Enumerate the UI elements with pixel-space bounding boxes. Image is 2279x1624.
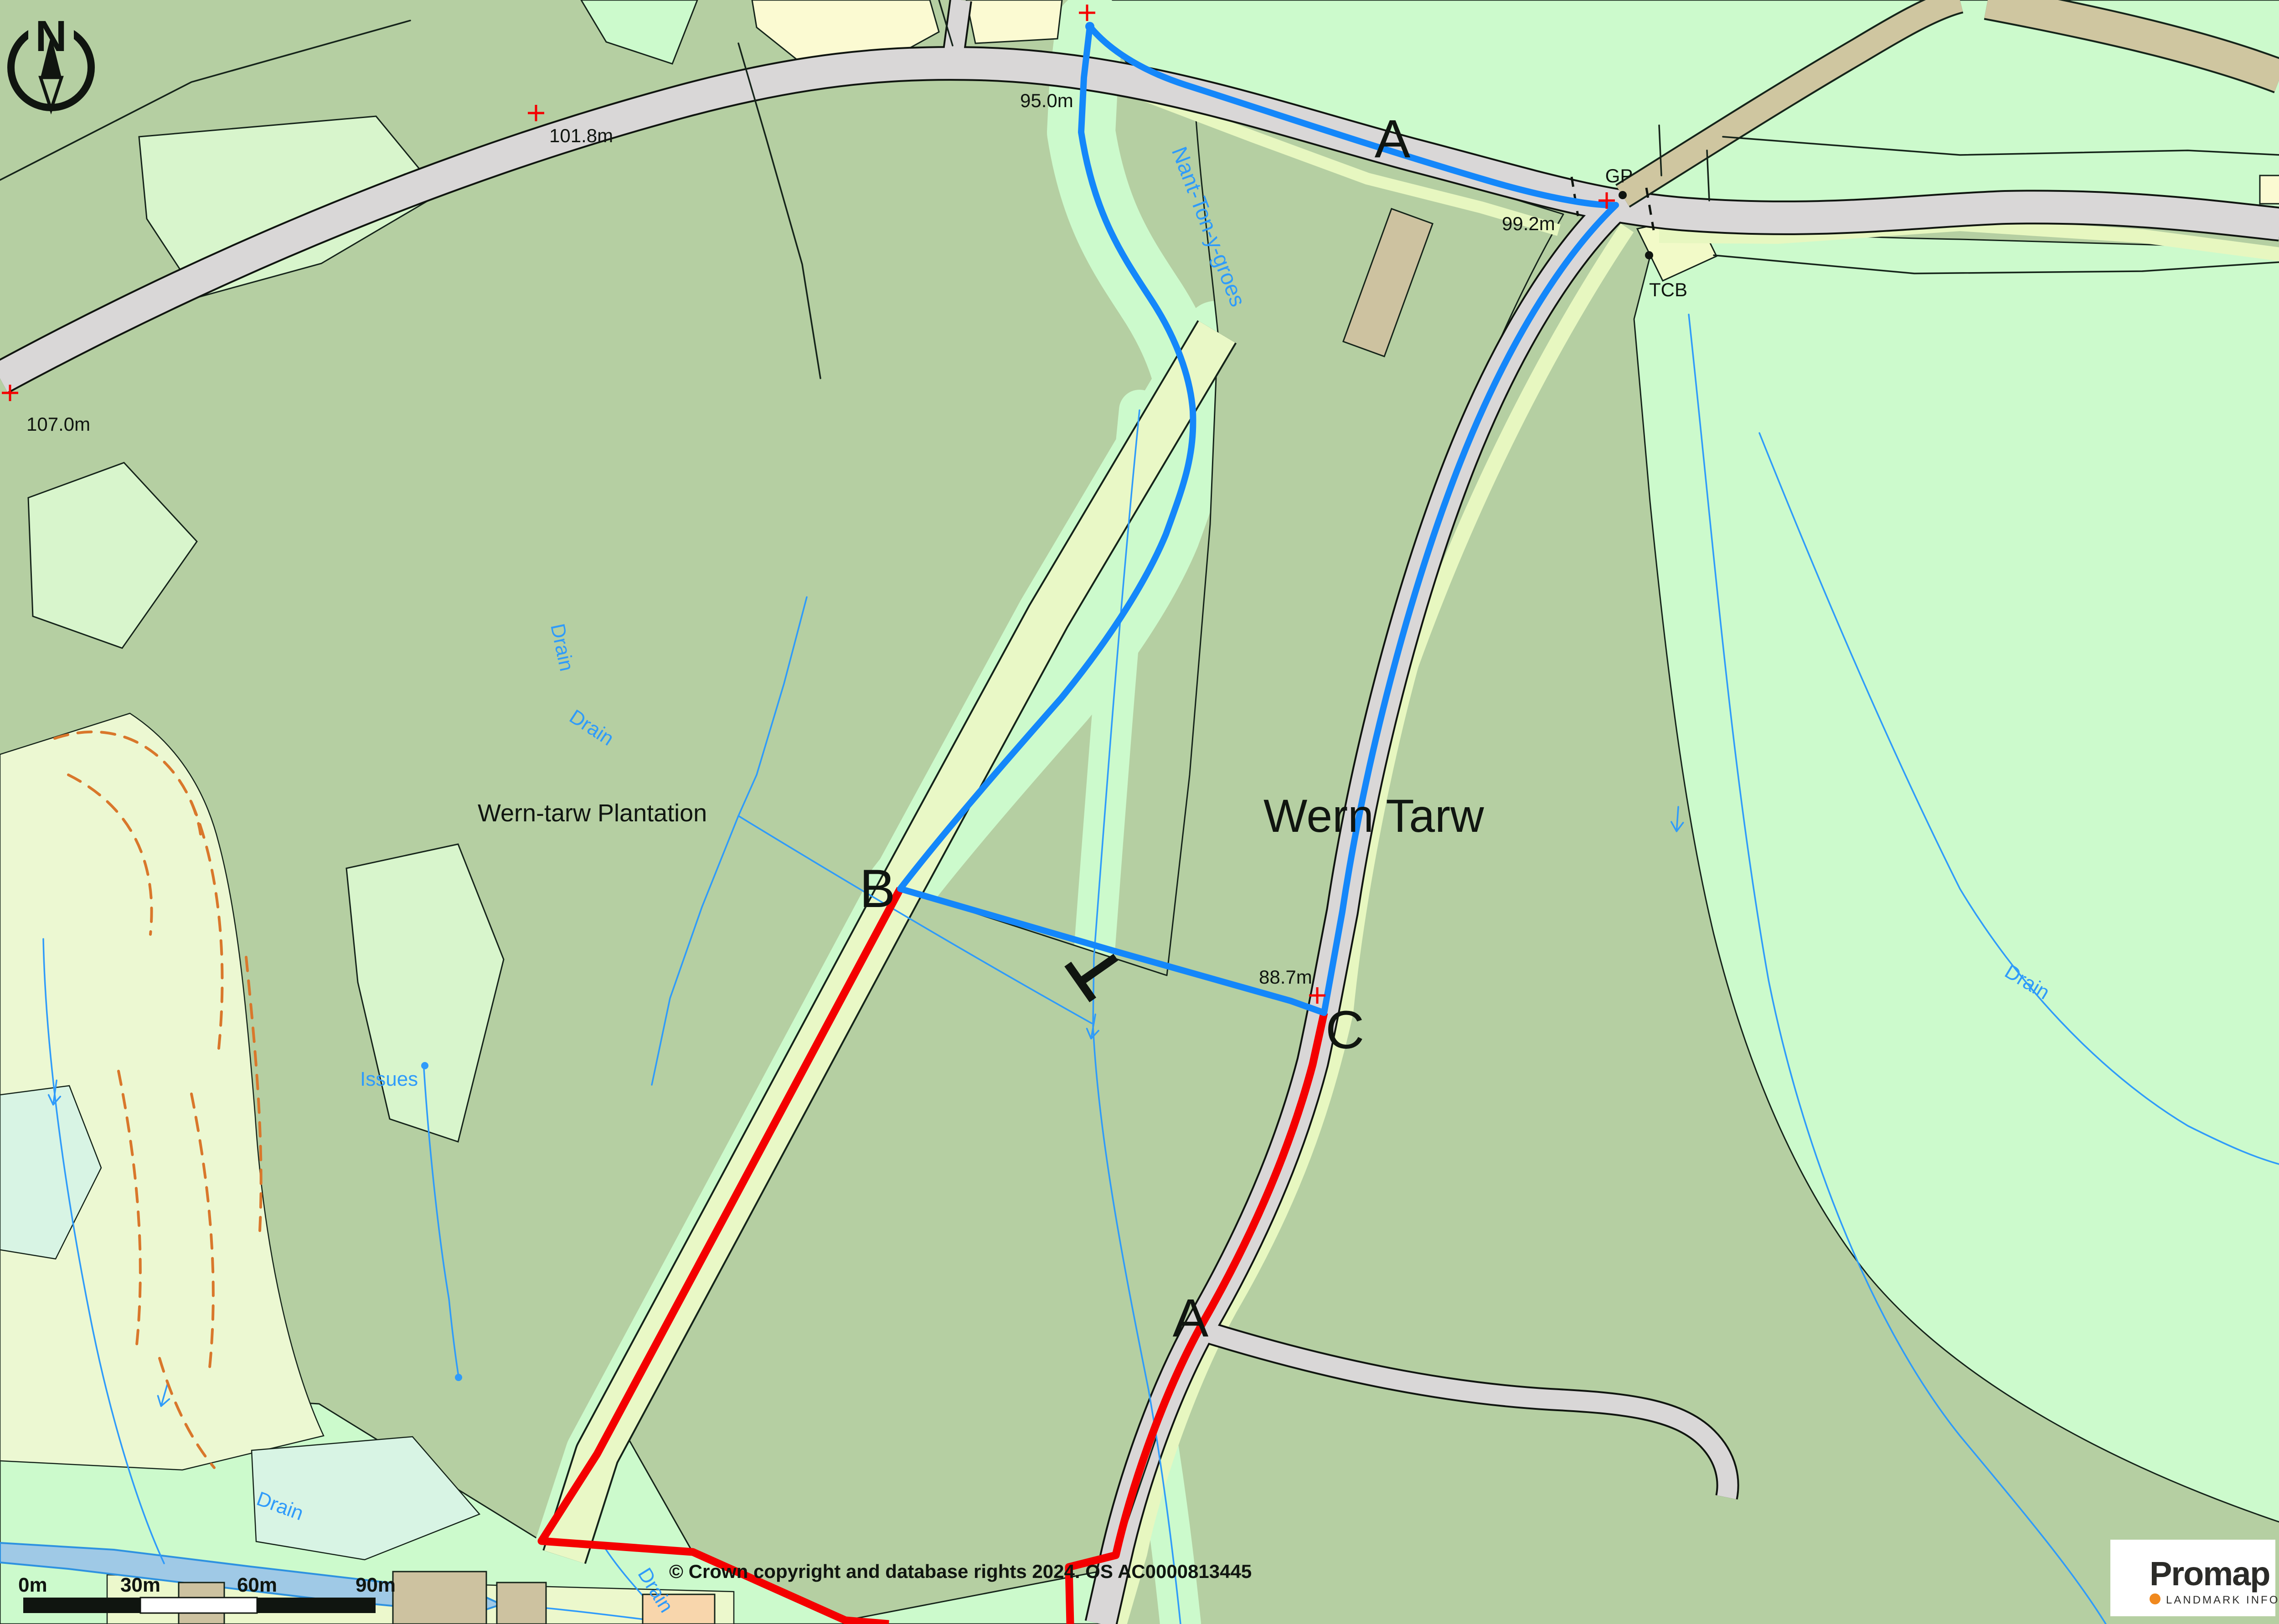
building [497, 1583, 546, 1624]
scale-0: 0m [18, 1574, 47, 1596]
marker-a-top: A [1375, 109, 1411, 169]
gp-dot [1619, 191, 1627, 199]
scale-60: 60m [237, 1574, 277, 1596]
tcb-dot [1645, 251, 1653, 259]
issues-label: Issues [360, 1068, 418, 1090]
scale-90: 90m [356, 1574, 396, 1596]
tcb-label: TCB [1649, 279, 1687, 300]
place-name-wern-tarw: Wern Tarw [1263, 790, 1484, 842]
spot-height-95: 95.0m [1020, 90, 1073, 111]
spot-height-107: 107.0m [26, 413, 90, 435]
scale-30: 30m [120, 1574, 160, 1596]
building [393, 1572, 486, 1624]
gp-label: GP [1605, 165, 1633, 186]
spot-height-99: 99.2m [1502, 213, 1555, 234]
map-canvas[interactable]: 95.0m 101.8m 107.0m 99.2m 88.7m GP TCB W… [0, 0, 2279, 1624]
promap-logo: Promap LANDMARK INFORMATION [2110, 1540, 2279, 1616]
spot-height-101: 101.8m [549, 125, 613, 146]
blue-boundary-start-dot [1085, 22, 1094, 31]
marker-a-bottom: A [1173, 1288, 1209, 1348]
logo-orange-dot-icon [2150, 1593, 2160, 1604]
spot-height-88: 88.7m [1259, 966, 1312, 988]
promap-map-page: 95.0m 101.8m 107.0m 99.2m 88.7m GP TCB W… [0, 0, 2279, 1624]
logo-brand-text: Promap [2150, 1555, 2270, 1593]
copyright-attribution: © Crown copyright and database rights 20… [669, 1561, 1252, 1582]
marker-c: C [1325, 1000, 1364, 1060]
place-name-plantation: Wern-tarw Plantation [478, 799, 707, 827]
logo-subtitle-text: LANDMARK INFORMATION [2166, 1594, 2279, 1606]
marker-b: B [860, 859, 896, 919]
